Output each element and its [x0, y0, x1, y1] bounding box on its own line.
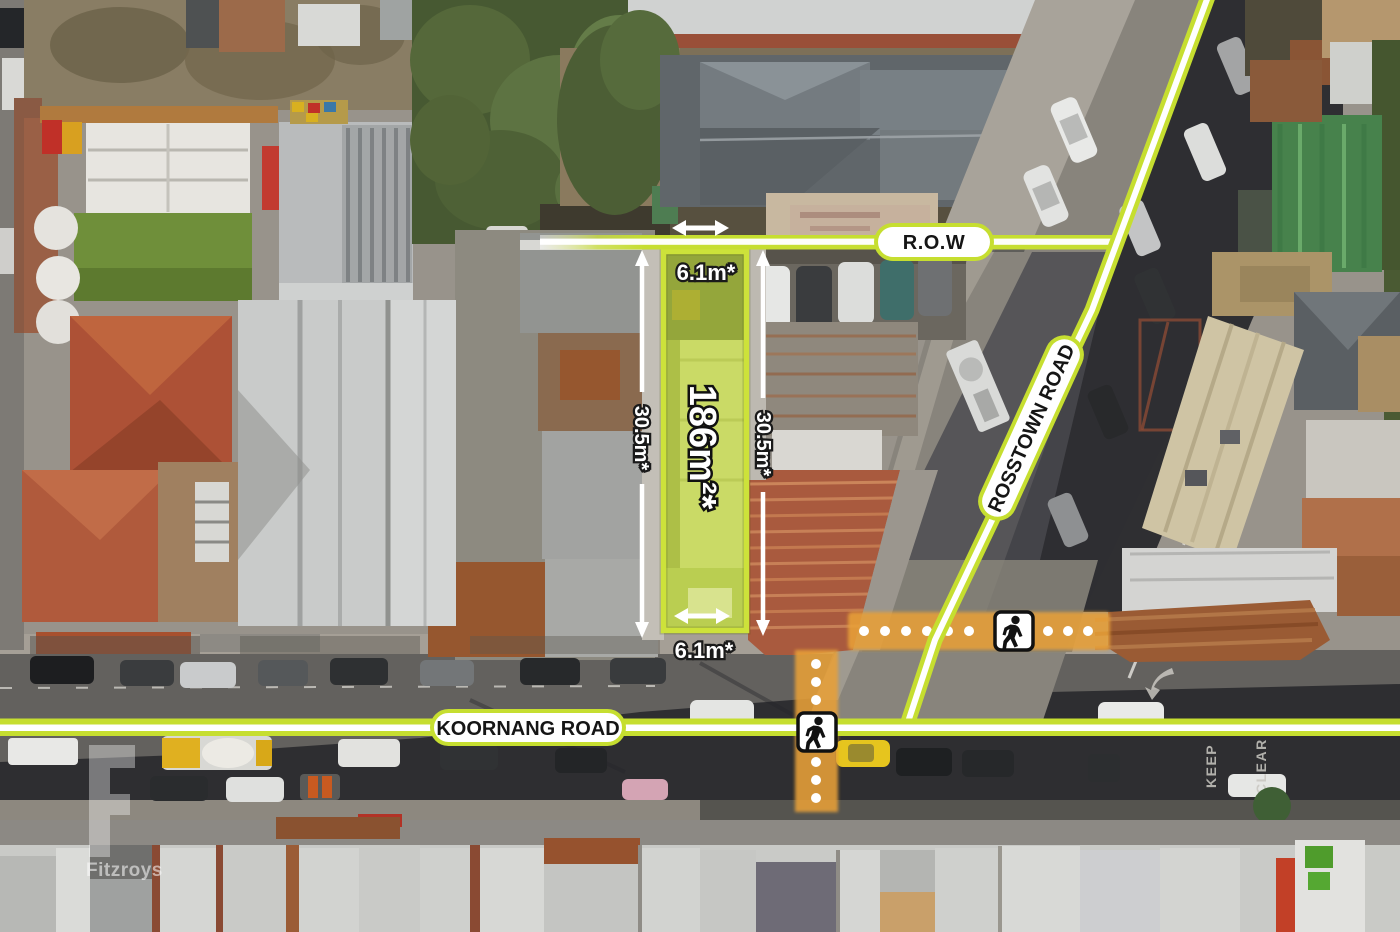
svg-text:CLEAR: CLEAR [1253, 738, 1269, 794]
svg-text:R.O.W: R.O.W [903, 232, 966, 254]
svg-text:KEEP: KEEP [1203, 744, 1219, 788]
svg-text:Fitzroys: Fitzroys [86, 860, 163, 881]
svg-text:6.1m*: 6.1m* [675, 638, 734, 663]
svg-text:30.5m*: 30.5m* [630, 406, 652, 471]
svg-text:KOORNANG ROAD: KOORNANG ROAD [436, 718, 619, 740]
svg-text:186m²*: 186m²* [681, 385, 723, 510]
svg-text:30.5m*: 30.5m* [752, 412, 774, 477]
svg-text:6.1m*: 6.1m* [677, 260, 736, 285]
